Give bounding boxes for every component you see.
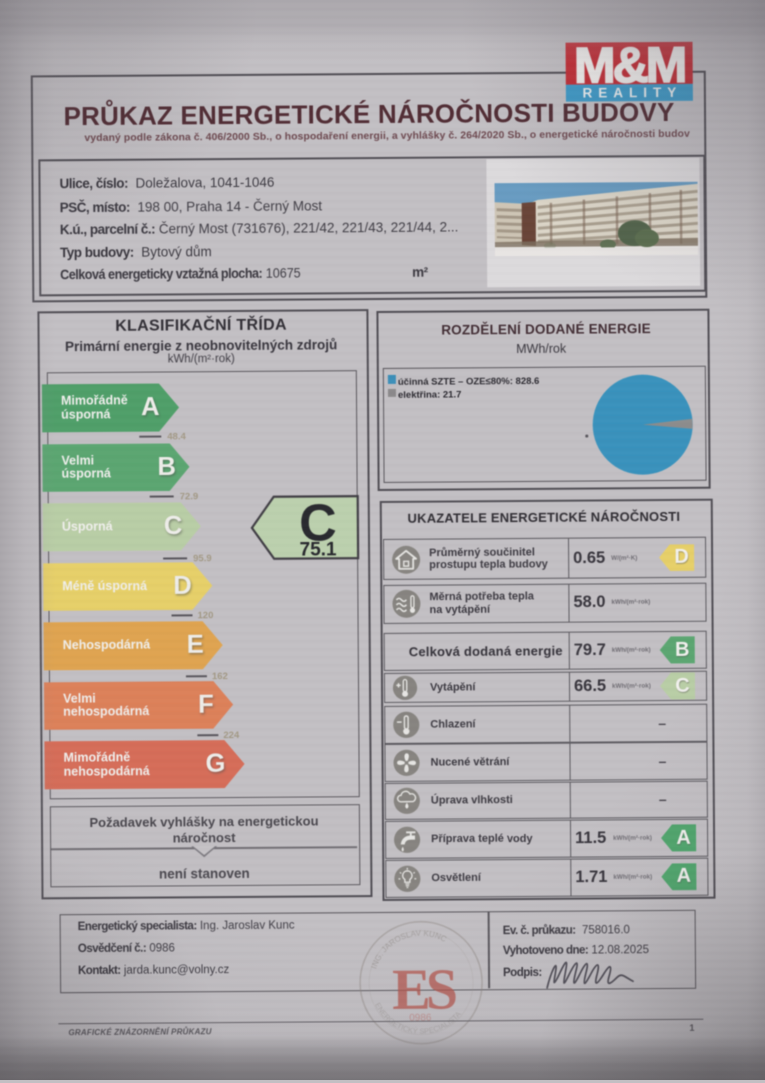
svg-text:0986: 0986 <box>409 1013 432 1024</box>
svg-text:75.1: 75.1 <box>300 539 338 560</box>
